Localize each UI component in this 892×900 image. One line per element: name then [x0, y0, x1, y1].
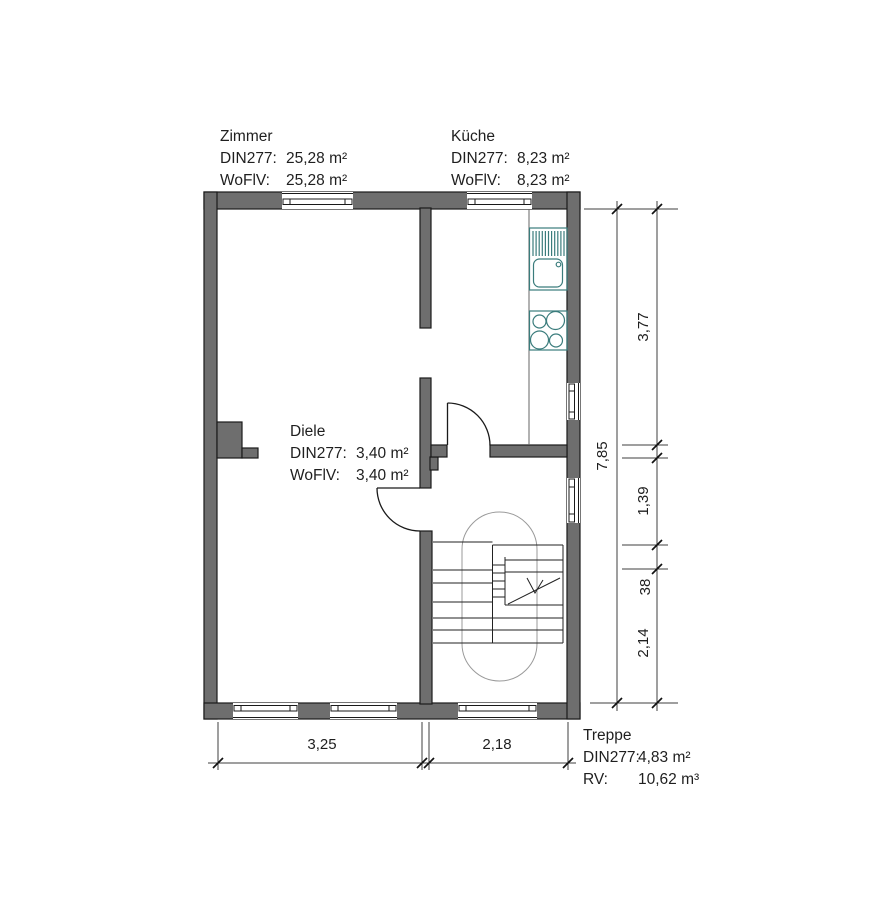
volume-standard-label: RV: [583, 769, 638, 791]
floor-plan-drawing [0, 0, 892, 900]
room-label-diele: Diele DIN277:3,40 m² WoFlV:3,40 m² [290, 421, 409, 487]
stair-treads [433, 542, 563, 643]
wall-divider-stub [430, 457, 438, 470]
door-swing-zimmer-icon [377, 488, 420, 531]
window-icon [458, 703, 537, 719]
area-standard-label: DIN277: [583, 747, 638, 769]
room-name: Zimmer [220, 126, 347, 148]
room-name: Treppe [583, 725, 699, 747]
kitchen-fixtures [529, 209, 567, 445]
volume-value: 10,62 m³ [638, 771, 699, 788]
wall-divider-lower [420, 531, 432, 704]
dimension-value-kueche-height: 3,77 [635, 287, 653, 367]
wall-hall-left [431, 445, 447, 457]
sink-icon [530, 228, 568, 290]
window-icon [467, 192, 532, 209]
floor-plan: Zimmer DIN277:25,28 m² WoFlV:25,28 m² Kü… [0, 0, 892, 900]
area-value: 8,23 m² [517, 172, 570, 189]
door-swing-kueche-icon [448, 403, 491, 446]
area-standard-label: WoFlV: [220, 170, 286, 192]
wall-divider-middle [420, 378, 431, 488]
wall-hall-right [490, 445, 567, 457]
room-name: Diele [290, 421, 409, 443]
area-value: 8,23 m² [517, 150, 570, 167]
wall-right [567, 192, 580, 719]
wall-pier [217, 422, 242, 458]
area-value: 3,40 m² [356, 467, 409, 484]
window-icon [330, 703, 397, 719]
wall-pier-ledge [242, 448, 258, 458]
room-label-kueche: Küche DIN277:8,23 m² WoFlV:8,23 m² [451, 126, 570, 192]
stove-icon [530, 311, 568, 350]
room-label-zimmer: Zimmer DIN277:25,28 m² WoFlV:25,28 m² [220, 126, 347, 192]
dimension-value-total-height: 7,85 [594, 416, 612, 496]
area-value: 25,28 m² [286, 150, 347, 167]
room-label-treppe: Treppe DIN277:4,83 m² RV:10,62 m³ [583, 725, 699, 791]
room-name: Küche [451, 126, 570, 148]
area-standard-label: DIN277: [290, 443, 356, 465]
area-value: 4,83 m² [638, 749, 691, 766]
area-standard-label: DIN277: [220, 148, 286, 170]
area-standard-label: WoFlV: [451, 170, 517, 192]
area-value: 25,28 m² [286, 172, 347, 189]
area-standard-label: WoFlV: [290, 465, 356, 487]
wall-left [204, 192, 217, 719]
wall-divider-upper [420, 208, 431, 328]
dimension-value-diele-height: 1,39 [635, 461, 653, 541]
area-standard-label: DIN277: [451, 148, 517, 170]
dimension-value-right-width: 2,18 [457, 736, 537, 754]
staircase [433, 512, 563, 681]
dimension-value-zimmer-width: 3,25 [282, 736, 362, 754]
area-value: 3,40 m² [356, 445, 409, 462]
window-icon [567, 478, 580, 523]
dimension-value-treppe-height: 2,14 [635, 603, 653, 683]
window-icon [282, 192, 353, 209]
window-icon [233, 703, 298, 719]
stair-direction-arrow-icon [508, 578, 560, 604]
window-icon [567, 383, 580, 420]
